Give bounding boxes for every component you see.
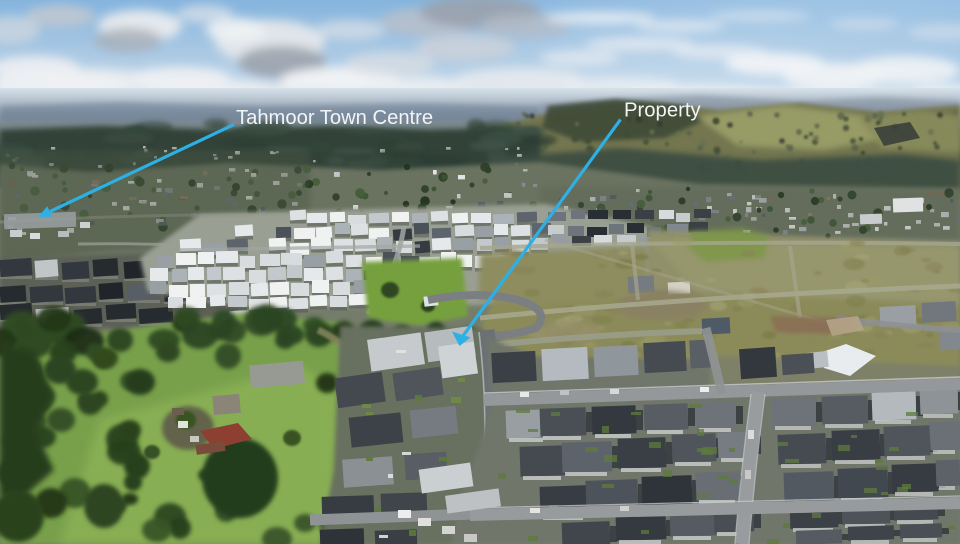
svg-text:Property: Property [624,100,702,122]
svg-text:Tahmoor Town Centre: Tahmoor Town Centre [236,107,433,129]
